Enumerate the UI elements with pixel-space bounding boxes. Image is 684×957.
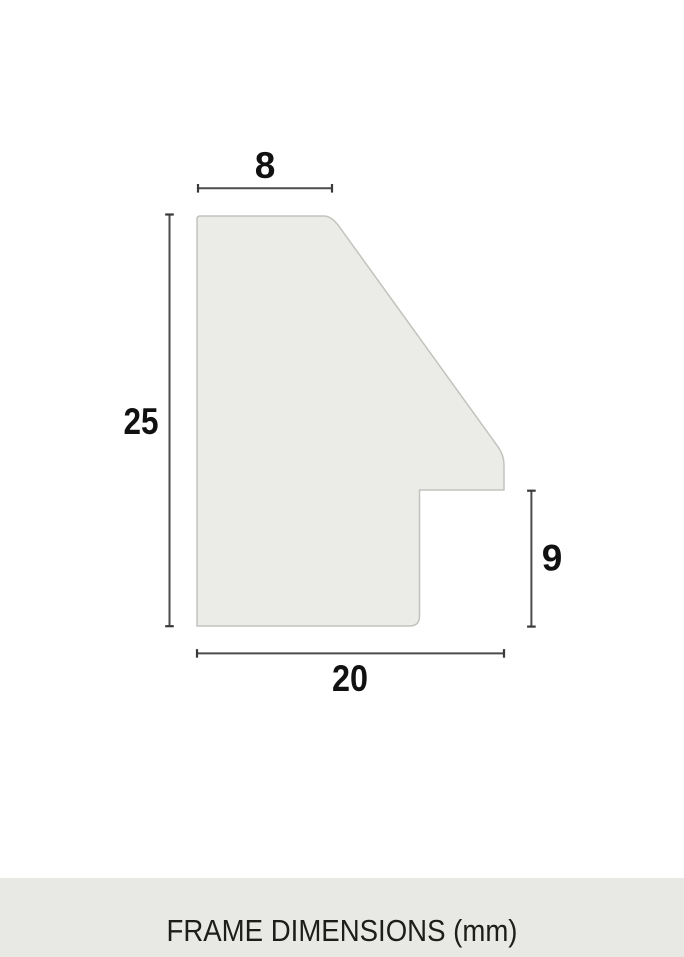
svg-text:20: 20	[332, 658, 368, 699]
svg-text:25: 25	[124, 401, 159, 442]
svg-text:FRAME DIMENSIONS (mm): FRAME DIMENSIONS (mm)	[167, 913, 518, 948]
svg-text:9: 9	[542, 538, 563, 579]
svg-text:8: 8	[255, 145, 276, 186]
